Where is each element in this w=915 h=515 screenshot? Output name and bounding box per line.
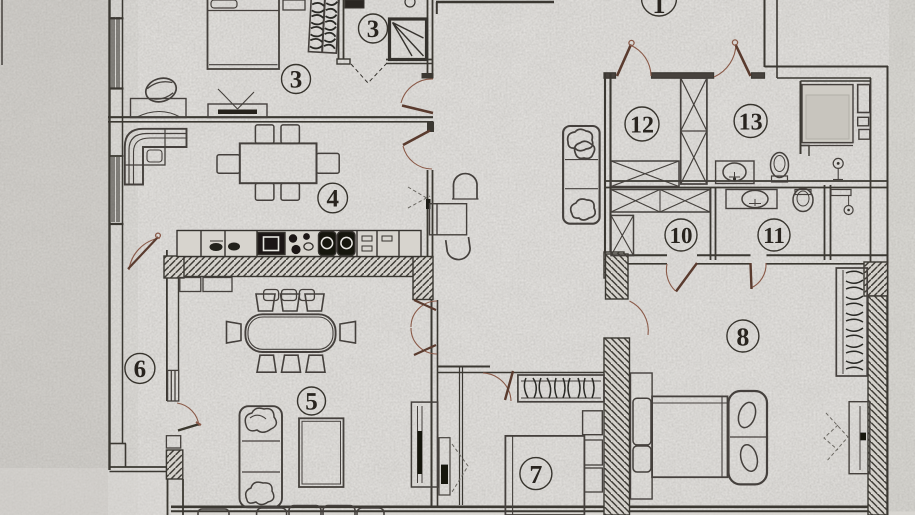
svg-text:10: 10 <box>670 223 693 248</box>
svg-text:12: 12 <box>630 113 654 139</box>
svg-text:13: 13 <box>739 110 763 136</box>
svg-text:8: 8 <box>736 323 749 352</box>
svg-text:3: 3 <box>290 67 303 94</box>
svg-text:7: 7 <box>529 460 542 489</box>
svg-text:1: 1 <box>653 0 666 19</box>
svg-text:11: 11 <box>763 223 785 248</box>
svg-text:3: 3 <box>367 16 380 43</box>
svg-text:6: 6 <box>134 356 147 383</box>
svg-text:5: 5 <box>305 389 318 416</box>
svg-text:4: 4 <box>326 186 339 213</box>
